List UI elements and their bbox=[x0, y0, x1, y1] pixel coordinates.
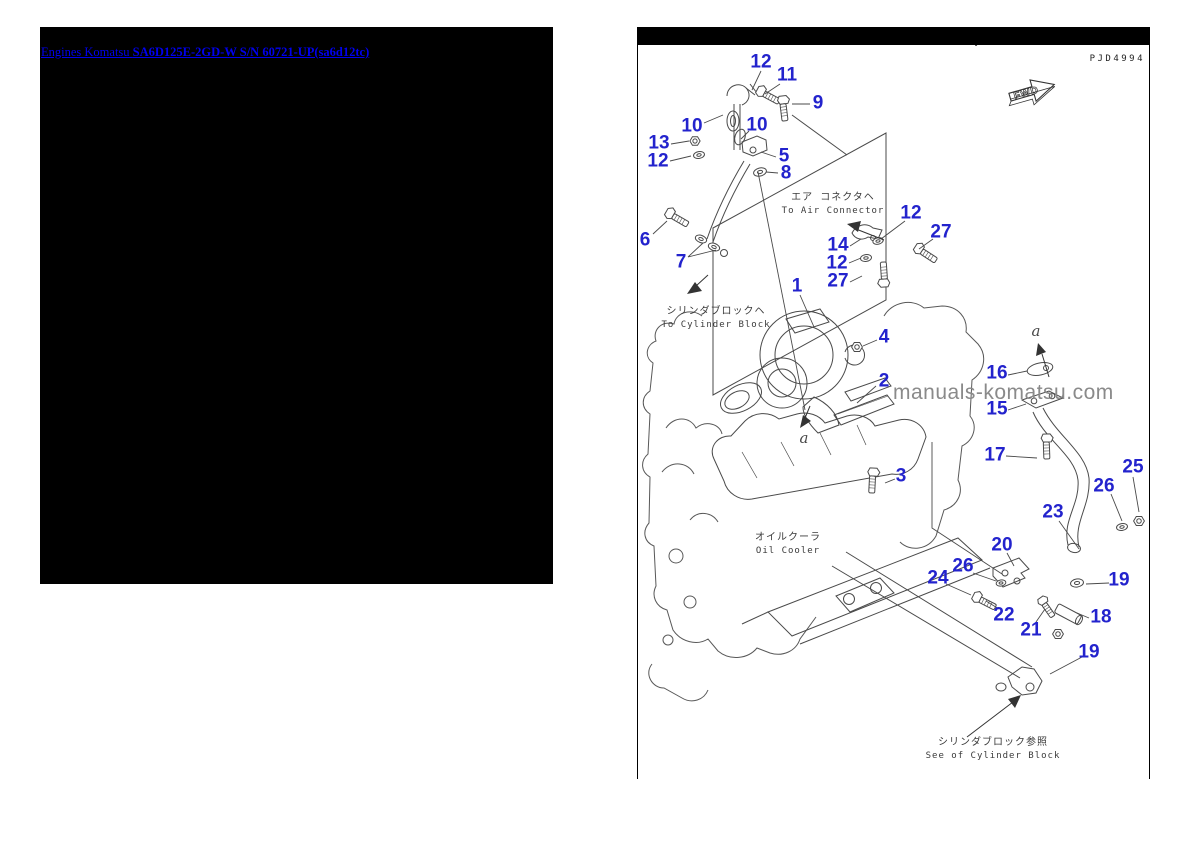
callout-18: 18 bbox=[1090, 608, 1111, 627]
callout-15: 15 bbox=[986, 400, 1007, 419]
callout-12: 12 bbox=[900, 204, 921, 223]
diagram-label: エア コネクタヘTo Air Connector bbox=[782, 191, 885, 217]
callout-25: 25 bbox=[1122, 458, 1143, 477]
model-link-model: SA6D125E-2GD-W S/N 60721-UP(sa6d12tc) bbox=[133, 45, 370, 59]
diagram-label: シリンダブロックヘTo Cylinder Block bbox=[661, 305, 770, 331]
callout-26: 26 bbox=[952, 557, 973, 576]
diagram-label: シリンダブロック参照See of Cylinder Block bbox=[926, 736, 1061, 762]
callout-19: 19 bbox=[1078, 643, 1099, 662]
diagram-top-bar bbox=[638, 27, 1149, 45]
callout-2: 2 bbox=[879, 372, 890, 391]
callout-17: 17 bbox=[984, 446, 1005, 465]
diagram-label: オイルクーラOil Cooler bbox=[755, 531, 821, 557]
callout-20: 20 bbox=[991, 536, 1012, 555]
fwd-arrow-icon: FWD bbox=[1005, 68, 1065, 112]
callout-4: 4 bbox=[879, 328, 890, 347]
callout-16: 16 bbox=[986, 364, 1007, 383]
callout-21: 21 bbox=[1020, 621, 1041, 640]
callout-19: 19 bbox=[1108, 571, 1129, 590]
model-link[interactable]: Engines Komatsu SA6D125E-2GD-W S/N 60721… bbox=[41, 45, 369, 60]
callout-8: 8 bbox=[781, 164, 792, 183]
model-link-prefix: Engines Komatsu bbox=[41, 45, 133, 59]
callout-6: 6 bbox=[640, 231, 651, 250]
callout-12: 12 bbox=[750, 53, 771, 72]
callout-26: 26 bbox=[1093, 477, 1114, 496]
callout-24: 24 bbox=[927, 569, 948, 588]
callout-3: 3 bbox=[896, 467, 907, 486]
callout-10: 10 bbox=[746, 116, 767, 135]
diagram-doc-id: PJD4994 bbox=[1090, 54, 1145, 64]
callout-11: 11 bbox=[777, 66, 797, 85]
diagram-cropped-caption: See of Cylinder Block bbox=[918, 45, 1088, 49]
callout-23: 23 bbox=[1042, 503, 1063, 522]
callout-7: 7 bbox=[676, 253, 687, 272]
page: Engines Komatsu SA6D125E-2GD-W S/N 60721… bbox=[0, 0, 1190, 842]
callout-27: 27 bbox=[827, 272, 848, 291]
callout-12: 12 bbox=[647, 152, 668, 171]
view-ref-a: a bbox=[1032, 322, 1041, 340]
callout-10: 10 bbox=[681, 117, 702, 136]
callout-27: 27 bbox=[930, 223, 951, 242]
part-image-placeholder: Engines Komatsu SA6D125E-2GD-W S/N 60721… bbox=[40, 27, 553, 584]
callout-9: 9 bbox=[813, 94, 824, 113]
callout-1: 1 bbox=[792, 277, 803, 296]
callout-22: 22 bbox=[993, 606, 1014, 625]
view-ref-a: a bbox=[800, 429, 809, 447]
